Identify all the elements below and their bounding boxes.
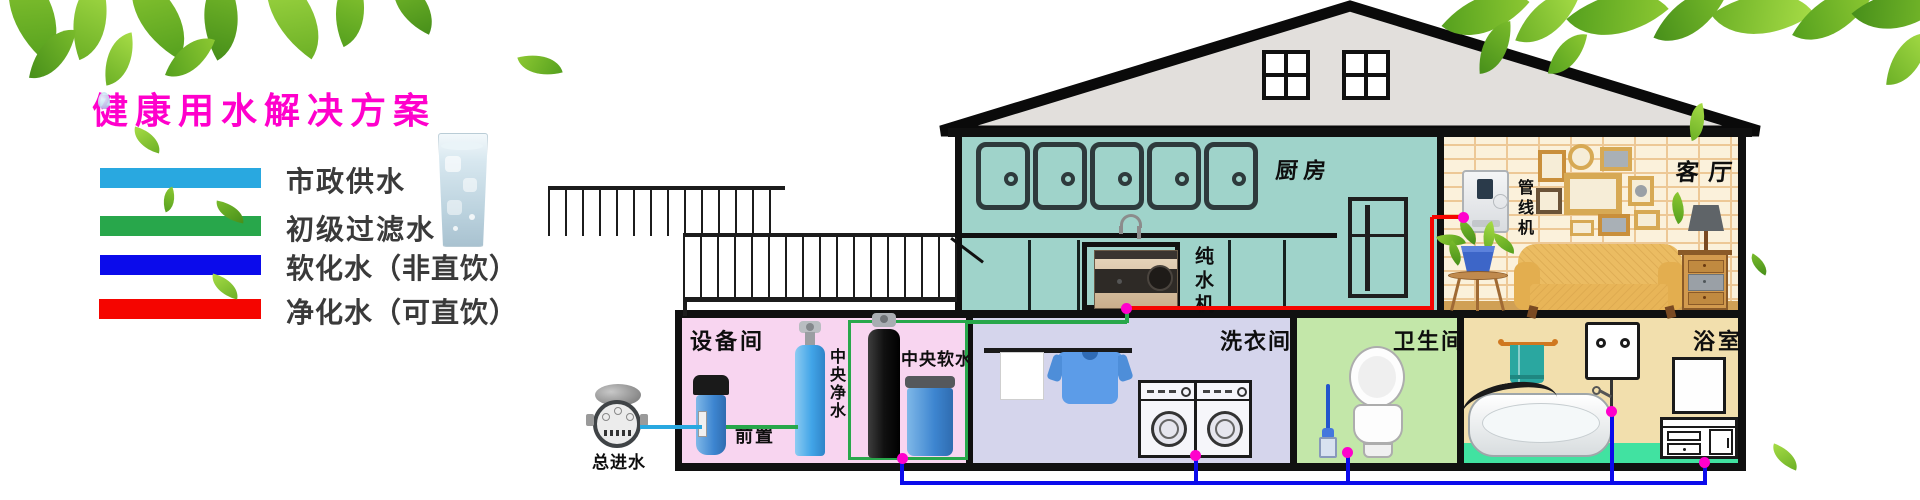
cornice bbox=[948, 128, 1752, 137]
cabinet-door bbox=[976, 142, 1030, 210]
junction-dot-toilet bbox=[1342, 447, 1353, 458]
gable-window bbox=[1262, 50, 1310, 100]
legend-bar-purified bbox=[99, 299, 261, 319]
water-surface bbox=[441, 142, 483, 150]
bath-label: 浴室 bbox=[1693, 324, 1743, 356]
page-title: 健康用水解决方案 bbox=[92, 82, 436, 134]
counter-door-line bbox=[1228, 240, 1231, 310]
cabinet-door-handle bbox=[1727, 438, 1729, 448]
legend-label-softened: 软化水（非直饮） bbox=[286, 247, 518, 287]
water-heater bbox=[1585, 322, 1640, 380]
bath-mirror bbox=[1672, 357, 1726, 414]
kitchen-label: 厨房 bbox=[1274, 153, 1333, 185]
purifier-neck bbox=[805, 332, 815, 345]
washer-dash bbox=[1169, 390, 1176, 393]
faucet-tip bbox=[1119, 226, 1123, 234]
softener-tank bbox=[868, 313, 900, 458]
legend-bar-municipal bbox=[100, 168, 261, 188]
living-label: 客厅 bbox=[1674, 153, 1744, 187]
pipeline-label: 管线机 bbox=[1512, 179, 1536, 239]
bubble bbox=[453, 226, 458, 231]
pipe-purified-v bbox=[1430, 217, 1434, 310]
picture-frame bbox=[1598, 214, 1630, 236]
cabinet-door-left bbox=[1667, 443, 1701, 455]
leaf-icon bbox=[1768, 443, 1802, 470]
counter-door-line bbox=[1283, 240, 1286, 310]
water-solution-banner: 健康用水解决方案 市政供水 初级过滤水 软化水（非直饮） 净化水（可直饮） bbox=[0, 0, 1920, 500]
cabinet-knob bbox=[1175, 172, 1189, 186]
pure-water-machine bbox=[1094, 250, 1178, 309]
cabinet-knob bbox=[1118, 172, 1132, 186]
softener-body bbox=[868, 329, 900, 458]
heater-knob bbox=[1620, 338, 1630, 348]
cabinet-drawer bbox=[1667, 431, 1701, 441]
salt-tank bbox=[905, 376, 955, 456]
leaf-icon bbox=[1746, 253, 1772, 275]
picture-frame-large bbox=[1564, 173, 1622, 215]
meter-dial-dot bbox=[602, 413, 610, 421]
junction-dot-pure-machine bbox=[1121, 303, 1132, 314]
cabinet-door-right bbox=[1709, 429, 1733, 455]
junction-dot-dispenser bbox=[1458, 212, 1469, 223]
pipe-filtered-equip bbox=[726, 425, 798, 429]
meter-body bbox=[593, 400, 641, 448]
laundry-label: 洗衣间 bbox=[1220, 324, 1292, 356]
drawer-knob bbox=[1703, 296, 1706, 299]
ice-cube bbox=[463, 178, 477, 192]
cabinet-door bbox=[1033, 142, 1087, 210]
towel-hook bbox=[1498, 339, 1504, 345]
kitchen-cabinets bbox=[976, 142, 1258, 210]
picture-frame bbox=[1570, 220, 1594, 236]
washer-dash bbox=[1147, 390, 1154, 393]
fence-bars-right bbox=[683, 237, 957, 297]
lamp-shade bbox=[1688, 205, 1724, 231]
pipeline-machine bbox=[1462, 170, 1509, 233]
water-meter bbox=[592, 384, 646, 450]
washer-divider bbox=[1194, 383, 1197, 455]
pipe-purified-h bbox=[1129, 306, 1434, 310]
junction-dot-softener bbox=[897, 453, 908, 464]
junction-dot-basin bbox=[1699, 457, 1710, 468]
meter-digits bbox=[604, 430, 631, 436]
leaf-icon bbox=[1886, 30, 1920, 88]
washer-knob bbox=[1237, 387, 1247, 397]
hanging-towel bbox=[1000, 352, 1044, 400]
lamp-pole bbox=[1704, 231, 1708, 251]
pipe-municipal bbox=[640, 425, 702, 429]
sofa-seat bbox=[1530, 284, 1668, 310]
toilet-brush-cup bbox=[1319, 437, 1337, 458]
legend-bar-softened bbox=[100, 255, 261, 275]
dewdrop-icon bbox=[98, 92, 110, 109]
washer-knob bbox=[1181, 387, 1191, 397]
drawer-knob bbox=[1703, 264, 1706, 267]
leaf-icon bbox=[242, 0, 343, 59]
picture-frame bbox=[1634, 210, 1660, 230]
washer-dash bbox=[1214, 390, 1221, 393]
washer-door bbox=[1207, 411, 1243, 447]
cabinet-knob bbox=[1004, 172, 1018, 186]
towel-hook bbox=[1552, 339, 1558, 345]
heater-knob bbox=[1596, 338, 1606, 348]
lower-left-wall bbox=[675, 310, 682, 470]
table-top bbox=[1678, 250, 1732, 255]
cabinet-counter-line bbox=[1663, 426, 1735, 428]
toilet-label: 卫生间 bbox=[1393, 324, 1465, 356]
machine-top-strip bbox=[1095, 251, 1177, 259]
salt-tank-lid bbox=[905, 376, 955, 388]
leaf-icon bbox=[158, 187, 180, 213]
cabinet-door bbox=[1147, 142, 1201, 210]
washer-dash bbox=[1225, 390, 1232, 393]
toilet-base bbox=[1363, 443, 1393, 458]
bottom-wall bbox=[675, 463, 1746, 471]
towel-hem bbox=[1510, 375, 1544, 379]
picture-frame-round bbox=[1568, 144, 1594, 170]
pot-rim bbox=[1461, 246, 1495, 252]
cabinet-door-knob bbox=[1683, 448, 1686, 451]
cabinet-knob bbox=[1061, 172, 1075, 186]
legend-label-purified: 净化水（可直饮） bbox=[286, 291, 518, 331]
window-mullion-h bbox=[1266, 73, 1306, 77]
faucet-stem bbox=[1137, 226, 1141, 239]
softener-label: 中央软水 bbox=[901, 345, 973, 370]
leaf-icon bbox=[379, 0, 446, 35]
washer-panel-line bbox=[1141, 399, 1249, 401]
table-drawer-gray bbox=[1688, 274, 1724, 291]
leaf-icon bbox=[208, 273, 242, 299]
picture-frame bbox=[1600, 147, 1632, 171]
leaf-icon bbox=[318, 0, 381, 47]
frame-photo-circle bbox=[1635, 185, 1647, 197]
gable-window bbox=[1342, 50, 1390, 100]
counter-door-line bbox=[1077, 240, 1080, 310]
stool-leg bbox=[1476, 280, 1479, 311]
leaf-icon bbox=[517, 47, 562, 82]
picture-frame bbox=[1536, 188, 1562, 214]
cabinet-door bbox=[1204, 142, 1258, 210]
machine-dot bbox=[1117, 279, 1122, 284]
fridge-handle bbox=[1365, 205, 1370, 291]
washer-door bbox=[1151, 411, 1187, 447]
kitchen-living-wall bbox=[1437, 136, 1444, 312]
junction-dot-bath bbox=[1606, 406, 1617, 417]
fence-post bbox=[683, 302, 687, 316]
water-glass-image bbox=[438, 133, 488, 247]
counter-door-line bbox=[1028, 240, 1031, 310]
drawer-knob bbox=[1703, 280, 1706, 283]
towel bbox=[1510, 345, 1544, 383]
prefilter-cap bbox=[693, 375, 729, 395]
table-drawer bbox=[1688, 292, 1724, 305]
softener-valve-dial bbox=[880, 315, 888, 323]
equipment-label: 设备间 bbox=[690, 324, 765, 356]
purifier-body bbox=[795, 345, 825, 456]
fence-rail-bottom bbox=[683, 297, 957, 302]
legend-label-filtered: 初级过滤水 bbox=[286, 208, 436, 248]
prefilter-unit bbox=[693, 375, 729, 457]
picture-frame bbox=[1628, 176, 1654, 206]
meter-lug bbox=[586, 414, 594, 426]
side-table bbox=[1682, 252, 1728, 310]
purifier-label: 中央净水 bbox=[824, 348, 848, 420]
dispenser-vent bbox=[1493, 194, 1508, 209]
inlet-label: 总进水 bbox=[592, 448, 646, 473]
fence-bars-left bbox=[548, 190, 785, 236]
pipe-softened-main bbox=[900, 481, 1707, 485]
cabinet-knob bbox=[1232, 172, 1246, 186]
bubble bbox=[469, 214, 475, 220]
meter-dial-dot bbox=[626, 413, 634, 421]
pipe-filtered-to-kitchen bbox=[966, 320, 1127, 324]
toilet-lid-inner bbox=[1358, 356, 1396, 398]
washer-dash bbox=[1203, 390, 1210, 393]
purifier-unit bbox=[795, 321, 825, 456]
window-mullion-h bbox=[1346, 73, 1386, 77]
picture-frame bbox=[1538, 150, 1566, 182]
ice-cube bbox=[447, 200, 462, 215]
washer-dash bbox=[1158, 390, 1165, 393]
dispenser-screen bbox=[1477, 179, 1493, 199]
leaf-icon bbox=[98, 32, 140, 85]
toilet-lid bbox=[1349, 346, 1405, 408]
legend-label-municipal: 市政供水 bbox=[286, 160, 406, 200]
fridge-divider bbox=[1352, 234, 1404, 237]
salt-tank-body bbox=[907, 388, 953, 456]
table-drawer bbox=[1688, 260, 1724, 273]
meter-dial-dot bbox=[614, 407, 622, 415]
machine-dial bbox=[1147, 265, 1173, 291]
ice-cube bbox=[445, 156, 461, 172]
cabinet-door bbox=[1090, 142, 1144, 210]
counter-top-edge bbox=[955, 233, 1337, 238]
junction-dot-laundry bbox=[1190, 450, 1201, 461]
washing-machines bbox=[1138, 380, 1252, 458]
basin-cabinet bbox=[1660, 417, 1738, 459]
pipe-softened-riser-bath bbox=[1610, 411, 1614, 483]
tshirt-body bbox=[1062, 356, 1118, 404]
purifier-valve-dial bbox=[806, 323, 814, 331]
fridge bbox=[1348, 197, 1408, 298]
prefilter-sticker bbox=[698, 411, 707, 437]
toilet-bowl bbox=[1353, 404, 1403, 444]
